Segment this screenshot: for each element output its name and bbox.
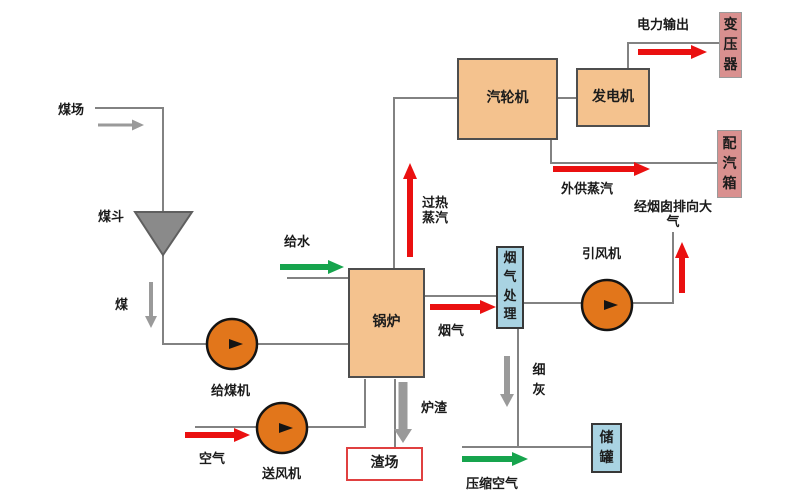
storage-tank-box: 储罐 [591, 423, 622, 473]
slag-yard-label: 渣场 [371, 454, 399, 474]
fine-ash-arrow [500, 356, 514, 407]
coal-yard-label: 煤场 [58, 104, 84, 119]
air-arrow [185, 428, 250, 442]
fine-ash-label: 细灰 [530, 361, 548, 400]
transformer-label: 变压器 [724, 15, 738, 76]
generator-box: 发电机 [576, 68, 650, 127]
forced-draft-fan-label: 送风机 [262, 468, 301, 483]
external-steam-label: 外供蒸汽 [561, 183, 613, 198]
power-output-arrow [638, 45, 707, 59]
coal-label: 煤 [115, 299, 128, 314]
feed-water-label: 给水 [284, 236, 310, 251]
coal-hopper-shape [135, 212, 192, 255]
coal-feeder-label: 给煤机 [211, 385, 250, 400]
flue-gas-arrow [430, 300, 496, 314]
coal-hopper-label: 煤斗 [96, 211, 126, 226]
induced-draft-fan-label: 引风机 [582, 248, 621, 263]
flue-gas-treatment-box: 烟气处理 [496, 246, 524, 329]
flow-lines-layer [0, 0, 800, 500]
generator-transformer-line [628, 43, 719, 69]
air-label: 空气 [199, 453, 225, 468]
steam-distribution-box: 配汽箱 [717, 130, 742, 198]
transformer-box: 变压器 [719, 12, 742, 78]
boiler-label: 锅炉 [373, 313, 401, 333]
power-plant-flow-diagram: 锅炉 汽轮机 发电机 变压器 配汽箱 烟气处理 储罐 渣场 煤场 煤斗 煤 给煤… [0, 0, 800, 500]
chimney-exhaust-arrow [675, 242, 689, 293]
slag-yard-box: 渣场 [346, 447, 423, 481]
furnace-slag-label: 炉渣 [421, 402, 447, 417]
storage-tank-label: 储罐 [600, 428, 614, 469]
power-output-label: 电力输出 [637, 19, 689, 34]
boiler-box: 锅炉 [348, 268, 425, 378]
turbine-label: 汽轮机 [487, 89, 529, 109]
chimney-to-atmosphere-label: 经烟囱排向大气 [633, 201, 713, 231]
steam-distribution-label: 配汽箱 [723, 134, 737, 195]
external-steam-arrow [553, 162, 650, 176]
coal-arrow [145, 282, 157, 328]
generator-label: 发电机 [592, 88, 634, 108]
turbine-box: 汽轮机 [457, 58, 558, 140]
feed-water-arrow [280, 260, 344, 274]
flue-gas-label: 烟气 [438, 325, 464, 340]
external-steam-pipe [551, 139, 717, 163]
compressed-air-arrow [462, 452, 528, 466]
superheated-steam-pipe [394, 98, 457, 269]
slag-arrow [394, 382, 412, 443]
coal-yard-arrow [98, 120, 144, 131]
superheated-steam-label: 过热蒸汽 [419, 197, 451, 227]
compressed-air-label: 压缩空气 [466, 478, 518, 493]
flue-gas-treatment-label: 烟气处理 [504, 250, 517, 325]
superheated-steam-arrow [403, 163, 417, 257]
